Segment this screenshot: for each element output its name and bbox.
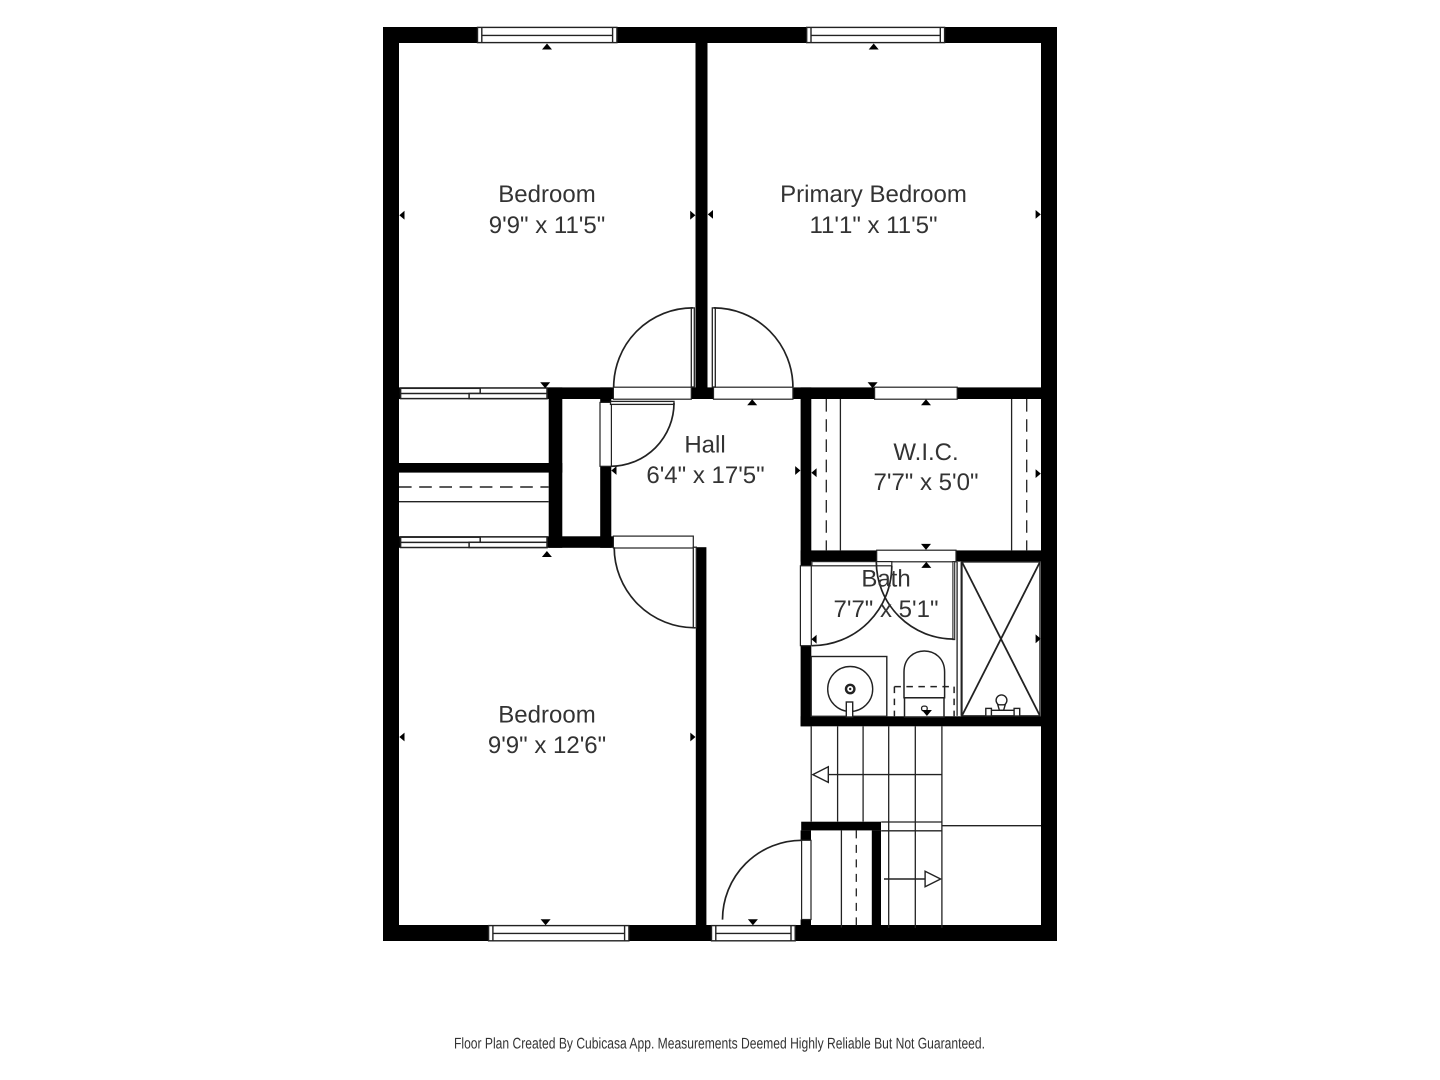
svg-text:9'9" x 11'5": 9'9" x 11'5"	[489, 212, 606, 239]
svg-text:Floor Plan Created By Cubicasa: Floor Plan Created By Cubicasa App. Meas…	[454, 1036, 985, 1053]
svg-text:9'9" x 12'6": 9'9" x 12'6"	[488, 732, 606, 759]
svg-text:7'7" x 5'1": 7'7" x 5'1"	[834, 596, 939, 623]
svg-text:11'1" x 11'5": 11'1" x 11'5"	[809, 212, 937, 239]
svg-text:Primary Bedroom: Primary Bedroom	[780, 181, 967, 208]
svg-text:6'4" x 17'5": 6'4" x 17'5"	[646, 462, 764, 489]
svg-text:Bedroom: Bedroom	[498, 181, 595, 208]
svg-text:Bath: Bath	[861, 566, 910, 593]
svg-text:7'7" x 5'0": 7'7" x 5'0"	[874, 469, 979, 496]
svg-text:W.I.C.: W.I.C.	[893, 439, 958, 466]
svg-text:Hall: Hall	[684, 432, 725, 459]
svg-text:Bedroom: Bedroom	[498, 702, 595, 729]
